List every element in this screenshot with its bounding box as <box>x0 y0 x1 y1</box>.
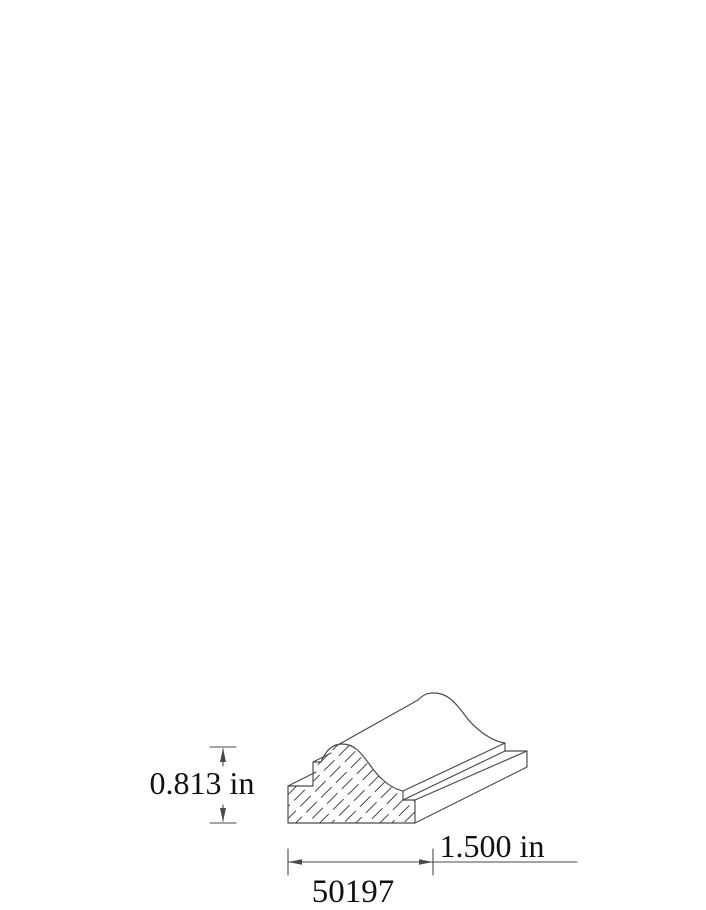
width-dim-arrow-left <box>288 859 302 865</box>
part-number-label: 50197 <box>312 874 395 910</box>
height-dimension: 0.813 in <box>150 747 255 823</box>
height-dim-arrow-up <box>220 748 226 762</box>
width-dimension-label: 1.500 in <box>440 828 545 864</box>
height-dim-arrow-down <box>220 808 226 822</box>
cross-section-hatched-face <box>288 744 415 823</box>
molding-technical-drawing: 0.813 in 1.500 in 50197 <box>0 0 706 910</box>
molding-isometric-view <box>288 693 527 823</box>
drawing-canvas: 0.813 in 1.500 in 50197 <box>0 0 706 910</box>
width-dim-arrow-right <box>419 859 433 865</box>
far-end-profile <box>418 693 527 767</box>
height-dimension-label: 0.813 in <box>150 765 255 801</box>
width-dimension: 1.500 in <box>288 828 577 875</box>
